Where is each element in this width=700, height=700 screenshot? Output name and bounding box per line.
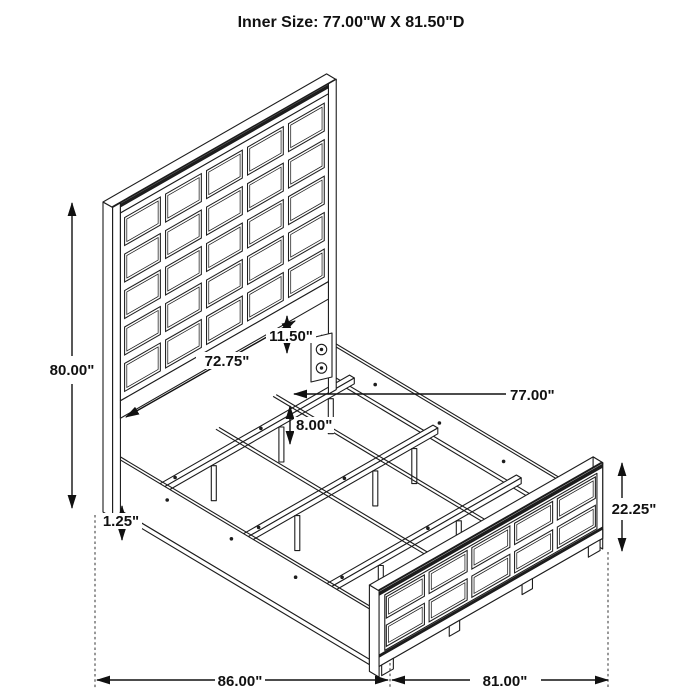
page-title: Inner Size: 77.00"W X 81.50"D (238, 14, 465, 31)
dim-label-headboard-rail-gap: 11.50" (269, 328, 313, 345)
dim-label-overall-depth: 86.00" (218, 673, 263, 690)
dim-label-footboard-height: 22.25" (612, 501, 657, 518)
dim-label-footboard-width: 81.00" (483, 673, 528, 690)
dim-overall-depth: 86.00" (97, 673, 388, 690)
dim-footboard-height: 22.25" (608, 463, 660, 551)
bed-dimension-diagram: 80.00" 72.75" 11.50" 77.00" 8.00" 1.25" … (0, 0, 700, 700)
dim-label-headboard-width: 72.75" (205, 353, 250, 370)
dim-label-inner-width: 77.00" (510, 387, 555, 404)
headboard-left-post (113, 203, 121, 518)
dim-label-overall-height: 80.00" (50, 362, 95, 379)
dim-label-rail-lip: 1.25" (103, 513, 139, 530)
footboard (369, 457, 602, 677)
diagram-svg: 80.00" 72.75" 11.50" 77.00" 8.00" 1.25" … (0, 0, 700, 700)
dim-label-leg-height: 8.00" (296, 417, 332, 434)
dim-overall-height: 80.00" (50, 203, 95, 508)
dim-footboard-width: 81.00" (392, 673, 608, 690)
